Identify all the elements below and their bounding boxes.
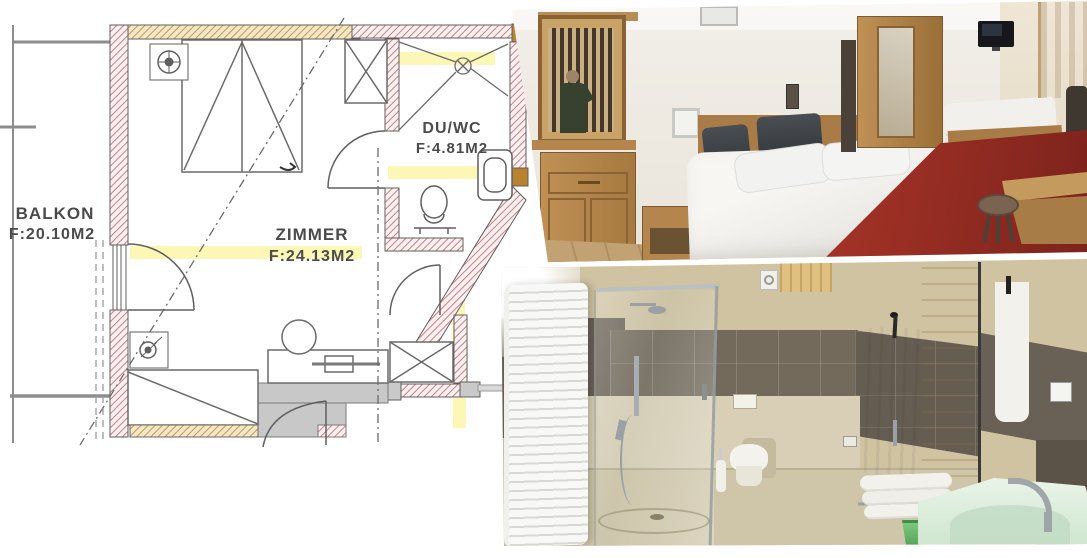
floorplan-image: BALKON F:20.10M2 ZIMMER F:24.13M2 DU/WC … xyxy=(0,0,530,450)
shower-mixer xyxy=(634,356,639,416)
wardrobe-mirror-door xyxy=(877,26,915,138)
tv-screen-glare xyxy=(982,24,1002,36)
wardrobe-top-symbol xyxy=(345,40,387,103)
dresser-handle xyxy=(578,181,600,184)
shower-tray-edge xyxy=(598,508,710,534)
wood-panel-right xyxy=(922,262,978,477)
zimmer-area: F:24.13M2 xyxy=(269,248,355,265)
wall-vent xyxy=(672,108,700,138)
mirror-shelf xyxy=(532,140,636,150)
wardrobe-bottom-symbol xyxy=(390,342,453,382)
small-dark-frame xyxy=(786,84,799,109)
bench-symbol xyxy=(128,370,258,437)
floorplan-svg: BALKON F:20.10M2 ZIMMER F:24.13M2 DU/WC … xyxy=(0,0,530,450)
balkon-label: BALKON xyxy=(16,204,95,223)
faucet-base xyxy=(1044,512,1052,532)
hanging-towel xyxy=(863,327,926,479)
balkon-area: F:20.10M2 xyxy=(9,226,95,243)
collage-canvas: BALKON F:20.10M2 ZIMMER F:24.13M2 DU/WC … xyxy=(0,0,1087,558)
zimmer-label: ZIMMER xyxy=(275,225,348,244)
duwc-label: DU/WC xyxy=(422,120,481,137)
stool-leg-mid xyxy=(996,216,1000,243)
mirror-switch-reflection xyxy=(1050,382,1072,402)
mirror-towel-strap xyxy=(1006,276,1011,294)
toilet-base xyxy=(736,466,762,486)
window-curtain xyxy=(1038,2,1087,98)
flush-plate xyxy=(733,394,757,409)
vent-fan-circle xyxy=(764,275,774,285)
towel-radiator xyxy=(504,283,588,548)
ceiling-light-symbol xyxy=(150,44,188,80)
ceiling-vent xyxy=(700,6,738,26)
socket-symbol xyxy=(130,332,168,368)
shower-door-handle xyxy=(702,384,707,400)
wood-slats-top xyxy=(780,262,832,292)
tv-mount xyxy=(992,47,1000,51)
toilet-paper-holder xyxy=(843,436,857,447)
duwc-area: F:4.81M2 xyxy=(416,140,488,157)
shower-head xyxy=(648,306,666,314)
shower-drain xyxy=(650,514,664,520)
toilet-brush xyxy=(716,460,726,492)
desk-front xyxy=(1010,196,1087,244)
person-head xyxy=(566,70,579,83)
luggage-rack xyxy=(841,40,856,152)
nightstand-shelf xyxy=(650,228,690,254)
shower-glass-left-edge xyxy=(594,290,596,546)
mirror-towel-reflection xyxy=(995,282,1029,422)
washbasin-symbol xyxy=(478,150,512,200)
stool-seat xyxy=(977,194,1019,216)
bed-symbol xyxy=(182,40,302,172)
